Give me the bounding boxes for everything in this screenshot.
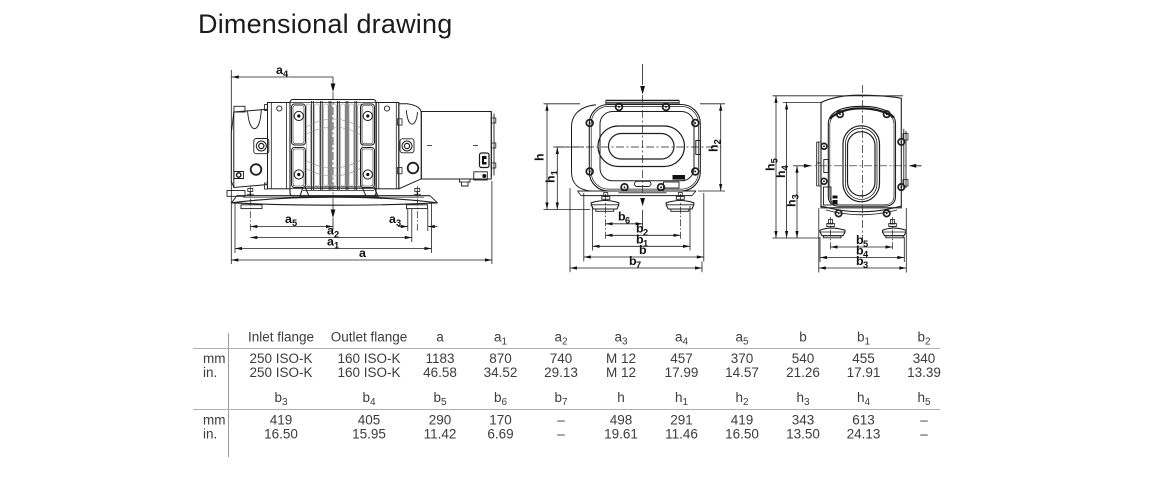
- svg-text:in.: in.: [203, 427, 217, 442]
- svg-text:160 ISO-K: 160 ISO-K: [337, 351, 400, 366]
- svg-text:7: 7: [636, 260, 641, 270]
- svg-text:a4: a4: [675, 330, 689, 348]
- svg-text:46.58: 46.58: [423, 365, 457, 380]
- svg-text:b6: b6: [494, 390, 508, 408]
- svg-text:b3: b3: [274, 390, 288, 408]
- svg-text:–: –: [557, 412, 565, 427]
- svg-text:17.91: 17.91: [847, 365, 881, 380]
- svg-text:19.61: 19.61: [604, 427, 638, 442]
- svg-text:h: h: [617, 390, 625, 405]
- svg-text:455: 455: [852, 351, 875, 366]
- svg-text:6: 6: [625, 216, 630, 226]
- svg-text:b5: b5: [433, 390, 447, 408]
- svg-text:16.50: 16.50: [264, 427, 298, 442]
- svg-text:419: 419: [731, 412, 754, 427]
- svg-text:5: 5: [292, 218, 297, 228]
- svg-text:291: 291: [670, 412, 693, 427]
- svg-text:13.50: 13.50: [786, 427, 820, 442]
- svg-text:–: –: [920, 412, 928, 427]
- svg-text:h1: h1: [675, 390, 689, 408]
- svg-text:740: 740: [550, 351, 573, 366]
- svg-text:4: 4: [863, 250, 869, 260]
- svg-text:1: 1: [334, 241, 339, 251]
- svg-text:a: a: [359, 246, 366, 260]
- svg-text:b4: b4: [362, 390, 376, 408]
- svg-text:11.46: 11.46: [665, 427, 698, 442]
- svg-text:M 12: M 12: [606, 365, 636, 380]
- svg-text:b1: b1: [857, 330, 871, 348]
- svg-text:h1: h1: [544, 170, 560, 183]
- svg-text:2: 2: [334, 230, 339, 240]
- svg-text:h2: h2: [735, 390, 749, 408]
- svg-text:in.: in.: [203, 365, 217, 380]
- svg-text:340: 340: [913, 351, 936, 366]
- svg-text:13.39: 13.39: [907, 365, 941, 380]
- svg-text:24.13: 24.13: [847, 427, 881, 442]
- svg-text:457: 457: [670, 351, 693, 366]
- svg-text:a: a: [327, 235, 334, 249]
- svg-text:a5: a5: [735, 330, 749, 348]
- svg-text:870: 870: [489, 351, 512, 366]
- svg-text:343: 343: [792, 412, 815, 427]
- svg-text:290: 290: [429, 412, 452, 427]
- svg-text:h: h: [533, 153, 547, 161]
- svg-text:160 ISO-K: 160 ISO-K: [337, 365, 400, 380]
- svg-text:Outlet flange: Outlet flange: [331, 330, 408, 345]
- svg-text:a3: a3: [614, 330, 628, 348]
- svg-text:h4: h4: [857, 390, 871, 408]
- svg-text:16.50: 16.50: [725, 427, 759, 442]
- svg-text:6.69: 6.69: [487, 427, 513, 442]
- svg-text:a: a: [276, 63, 283, 77]
- svg-text:h3: h3: [796, 390, 810, 408]
- svg-text:b2: b2: [917, 330, 931, 348]
- svg-text:M 12: M 12: [606, 351, 636, 366]
- svg-text:498: 498: [610, 412, 633, 427]
- svg-text:613: 613: [852, 412, 875, 427]
- svg-text:21.26: 21.26: [786, 365, 820, 380]
- svg-text:5: 5: [863, 239, 868, 249]
- svg-text:b: b: [639, 243, 647, 257]
- svg-text:34.52: 34.52: [484, 365, 518, 380]
- svg-text:419: 419: [270, 412, 293, 427]
- svg-text:29.13: 29.13: [544, 365, 578, 380]
- svg-text:h5: h5: [917, 390, 931, 408]
- svg-text:h2: h2: [707, 139, 723, 152]
- svg-text:17.99: 17.99: [665, 365, 699, 380]
- svg-text:405: 405: [358, 412, 381, 427]
- svg-text:2: 2: [643, 227, 648, 237]
- svg-text:–: –: [920, 427, 928, 442]
- svg-text:11.42: 11.42: [424, 427, 457, 442]
- svg-text:Dimensional drawing: Dimensional drawing: [198, 9, 452, 39]
- svg-text:15.95: 15.95: [352, 427, 386, 442]
- svg-text:b: b: [799, 330, 807, 345]
- svg-text:mm: mm: [203, 412, 226, 427]
- svg-text:h3: h3: [785, 194, 801, 207]
- svg-text:b7: b7: [554, 390, 568, 408]
- svg-text:250 ISO-K: 250 ISO-K: [249, 351, 312, 366]
- svg-text:mm: mm: [203, 351, 226, 366]
- svg-text:370: 370: [731, 351, 754, 366]
- svg-text:a: a: [389, 212, 396, 226]
- svg-text:4: 4: [283, 69, 289, 79]
- svg-text:250 ISO-K: 250 ISO-K: [249, 365, 312, 380]
- svg-text:a: a: [436, 330, 444, 345]
- svg-text:a2: a2: [554, 330, 568, 348]
- svg-text:3: 3: [396, 218, 401, 228]
- svg-text:540: 540: [792, 351, 815, 366]
- svg-text:a1: a1: [494, 330, 508, 348]
- svg-text:1183: 1183: [425, 351, 454, 366]
- svg-text:14.57: 14.57: [725, 365, 759, 380]
- svg-text:170: 170: [489, 412, 512, 427]
- svg-text:h5: h5: [764, 158, 780, 171]
- svg-text:3: 3: [863, 260, 868, 270]
- svg-text:a: a: [285, 212, 292, 226]
- svg-text:Inlet flange: Inlet flange: [248, 330, 314, 345]
- svg-text:–: –: [557, 427, 565, 442]
